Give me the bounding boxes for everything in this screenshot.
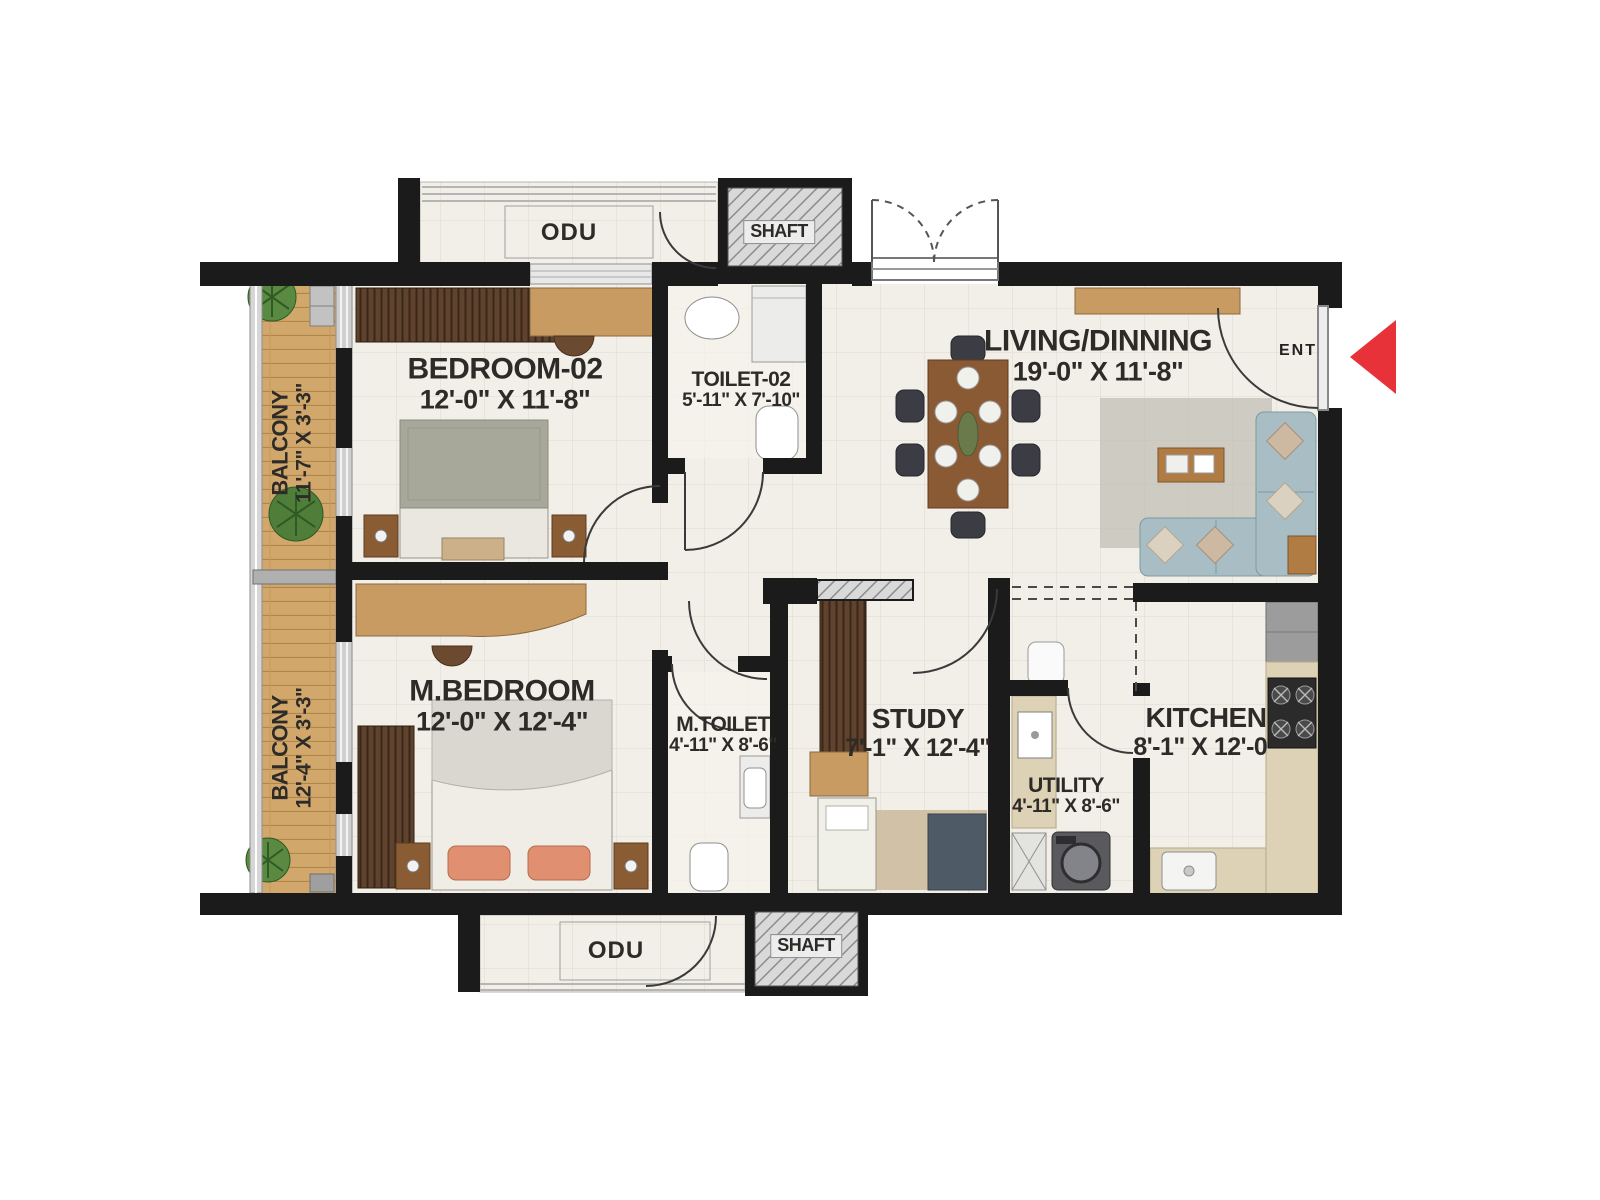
bedroom02-dims: 12'-0" X 11'-8" — [407, 386, 602, 416]
room-label-bedroom02: BEDROOM-02 12'-0" X 11'-8" — [407, 353, 602, 416]
floor-plan-drawing — [0, 0, 1600, 1200]
room-label-balcony1: BALCONY 11'-7" X 3'-3" — [268, 383, 315, 503]
room-label-balcony2: BALCONY 12'-4" X 3'-3" — [268, 688, 315, 809]
mbedroom-dims: 12'-0" X 12'-4" — [409, 708, 595, 738]
bedroom02-name: BEDROOM-02 — [407, 353, 602, 386]
balcony2-name: BALCONY — [268, 688, 292, 809]
entrance-arrow-icon — [1350, 320, 1396, 394]
mtoilet-dims: 4'-11" X 8'-6" — [669, 736, 777, 757]
kitchen-name: KITCHEN — [1133, 703, 1278, 734]
lintel-hatch — [817, 580, 913, 600]
entrance-label: ENT — [1279, 342, 1317, 360]
living-dims: 19'-0" X 11'-8" — [984, 358, 1212, 388]
mtoilet-name: M.TOILET — [669, 713, 777, 736]
study-dims: 7'-1" X 12'-4" — [845, 735, 990, 763]
mbedroom-name: M.BEDROOM — [409, 675, 595, 708]
room-label-kitchen: KITCHEN 8'-1" X 12'-0" — [1133, 703, 1278, 761]
balcony2-dims: 12'-4" X 3'-3" — [293, 688, 316, 809]
room-label-mbedroom: M.BEDROOM 12'-0" X 12'-4" — [409, 675, 595, 738]
study-name: STUDY — [845, 704, 990, 735]
balcony1-name: BALCONY — [268, 383, 292, 503]
toilet02-dims: 5'-11" X 7'-10" — [682, 391, 800, 412]
room-label-toilet02: TOILET-02 5'-11" X 7'-10" — [682, 368, 800, 412]
shaft-top-label: SHAFT — [743, 220, 815, 244]
floor-plan-page: ODU SHAFT BEDROOM-02 12'-0" X 11'-8" TOI… — [0, 0, 1600, 1200]
toilet02-name: TOILET-02 — [682, 368, 800, 391]
living-name: LIVING/DINNING — [984, 325, 1212, 358]
kitchen-dims: 8'-1" X 12'-0" — [1133, 734, 1278, 762]
room-label-mtoilet: M.TOILET 4'-11" X 8'-6" — [669, 713, 777, 757]
utility-dims: 4'-11" X 8'-6" — [1012, 797, 1120, 818]
room-label-living: LIVING/DINNING 19'-0" X 11'-8" — [984, 325, 1212, 388]
room-label-study: STUDY 7'-1" X 12'-4" — [845, 704, 990, 762]
odu-top-label: ODU — [541, 220, 597, 246]
room-label-utility: UTILITY 4'-11" X 8'-6" — [1012, 774, 1120, 818]
balcony1-dims: 11'-7" X 3'-3" — [293, 383, 316, 503]
shaft-bottom-label: SHAFT — [770, 934, 842, 958]
utility-name: UTILITY — [1012, 774, 1120, 797]
odu-bottom-label: ODU — [588, 938, 644, 964]
